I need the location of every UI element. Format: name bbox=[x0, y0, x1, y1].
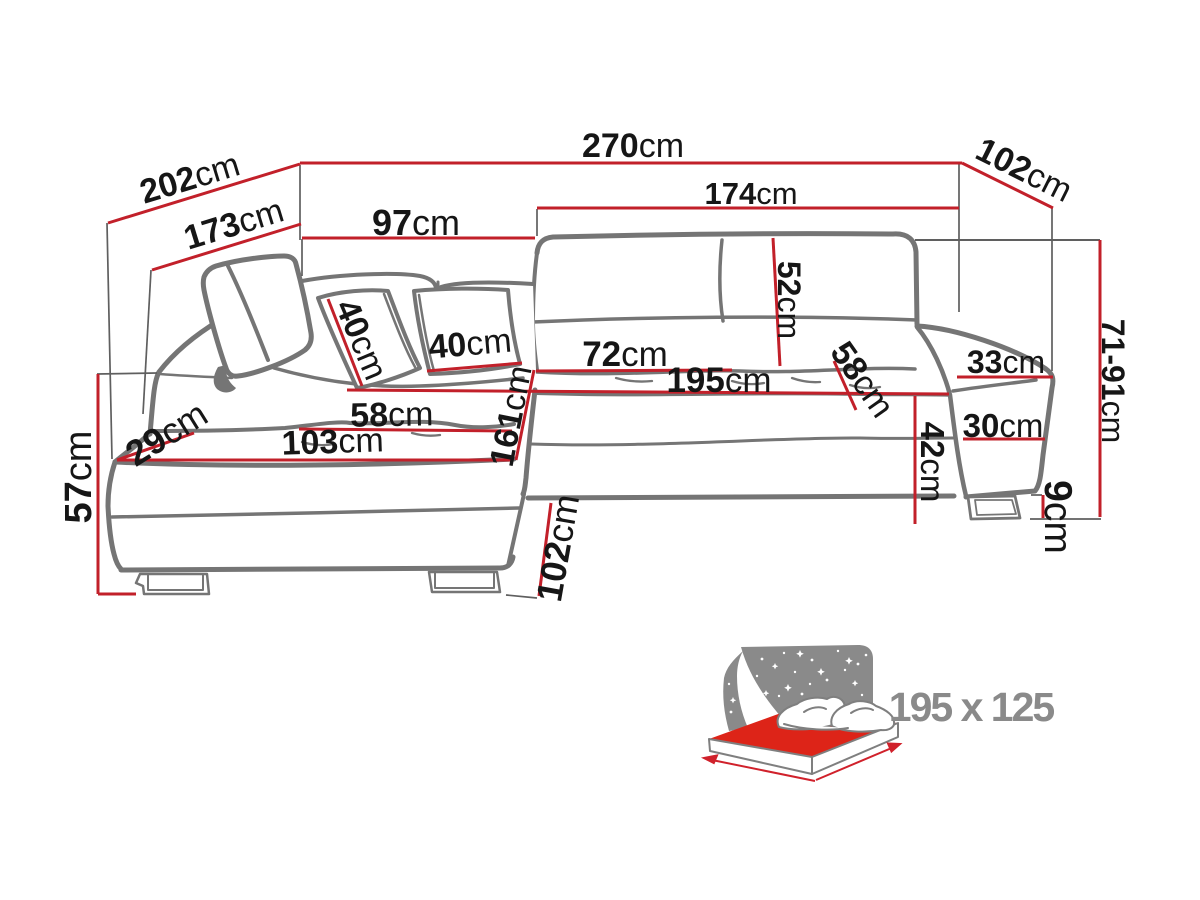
svg-text:174cm: 174cm bbox=[704, 176, 797, 211]
svg-text:30cm: 30cm bbox=[963, 407, 1044, 444]
svg-text:195cm: 195cm bbox=[666, 361, 771, 400]
svg-text:9cm: 9cm bbox=[1036, 480, 1079, 554]
svg-text:52cm: 52cm bbox=[771, 261, 807, 339]
svg-text:57cm: 57cm bbox=[58, 431, 100, 524]
svg-text:33cm: 33cm bbox=[967, 344, 1045, 380]
svg-text:42cm: 42cm bbox=[914, 422, 951, 503]
svg-text:270cm: 270cm bbox=[582, 127, 684, 165]
svg-text:71-91cm: 71-91cm bbox=[1095, 319, 1131, 444]
svg-text:40cm: 40cm bbox=[427, 321, 513, 366]
svg-text:72cm: 72cm bbox=[582, 335, 668, 374]
svg-text:97cm: 97cm bbox=[372, 202, 460, 243]
svg-text:58cm: 58cm bbox=[350, 395, 434, 434]
svg-text:195 x 125: 195 x 125 bbox=[889, 684, 1055, 730]
